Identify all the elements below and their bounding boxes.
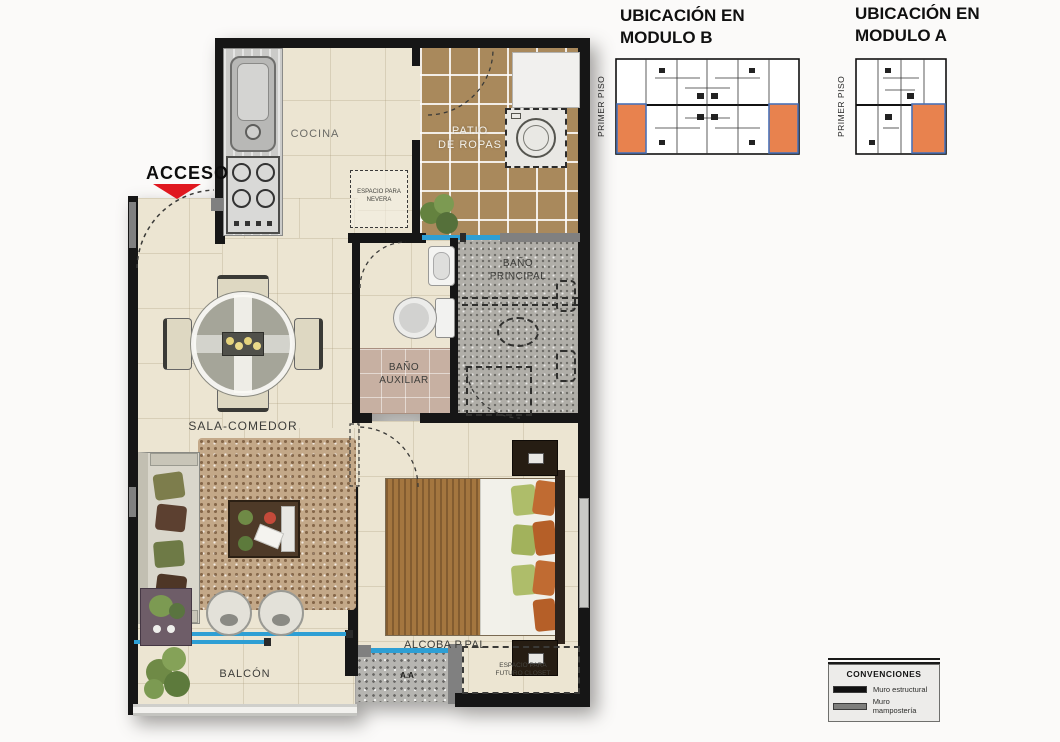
access-arrow-icon xyxy=(153,184,201,199)
door-arc-shower xyxy=(466,366,520,418)
legend-title: CONVENCIONES xyxy=(833,669,935,679)
module-b-floor-label: PRIMER PISO xyxy=(596,58,606,155)
legend: CONVENCIONES Muro estructural Muro mampo… xyxy=(828,658,940,722)
legend-item-structural: Muro estructural xyxy=(833,685,935,694)
legend-item-masonry: Muro mampostería xyxy=(833,697,935,715)
structural-wall-swatch xyxy=(833,686,867,693)
highlighted-unit-left xyxy=(617,104,646,153)
highlighted-unit-right xyxy=(769,104,798,153)
legend-item-label: Muro mampostería xyxy=(873,697,935,715)
highlighted-unit xyxy=(912,104,945,153)
door-arc-entry xyxy=(137,190,214,268)
module-b-key-plan xyxy=(615,58,800,155)
module-a-key-plan xyxy=(855,58,947,155)
bedroom-door-leaf xyxy=(350,424,359,486)
module-a-floor-label: PRIMER PISO xyxy=(836,58,846,155)
module-b-title: UBICACIÓN EN MODULO B xyxy=(620,5,810,49)
module-a-title: UBICACIÓN EN MODULO A xyxy=(855,3,1055,47)
page: ESPACIO PARA NEVERA xyxy=(0,0,1060,742)
legend-item-label: Muro estructural xyxy=(873,685,927,694)
door-arc-aux-bath xyxy=(360,242,406,288)
door-arc-patio xyxy=(428,50,493,115)
door-arc-bedroom xyxy=(358,427,418,487)
masonry-wall-swatch xyxy=(833,703,867,710)
